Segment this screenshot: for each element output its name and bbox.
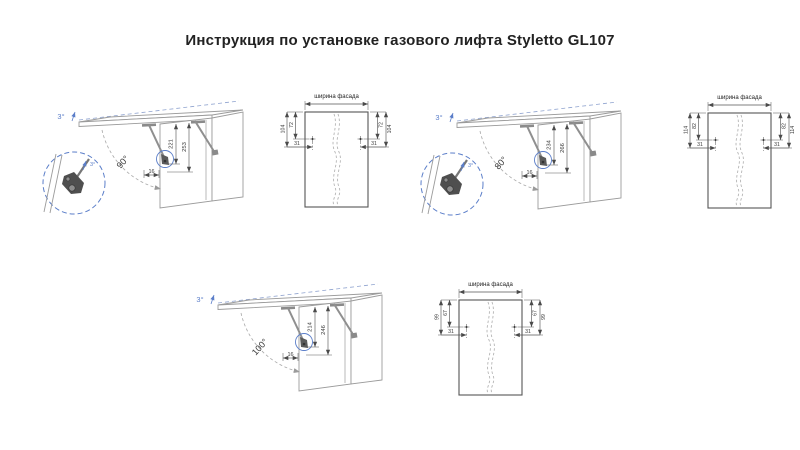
dimension-inner: 221 (169, 139, 175, 149)
bracket-detail-circle (43, 152, 105, 214)
dimension-outer: 253 (182, 142, 188, 152)
facade-dim-outer-left: 99 (435, 314, 441, 320)
facade-drawing-100: ширина фасада 99 67 99 67 31 31 (434, 276, 549, 411)
facade-dim-inner-right: 67 (533, 310, 539, 316)
cabinet-diagram-100: 3° 100° 214 246 16 (167, 269, 407, 404)
facade-width-label: ширина фасада (717, 95, 762, 101)
facade-geometry (284, 101, 389, 207)
facade-dim-inner-left: 72 (289, 122, 295, 128)
facade-dim-inner-left: 67 (443, 310, 449, 316)
overtravel-angle-label: 3° (57, 112, 64, 121)
facade-dim-inner-right: 72 (379, 122, 385, 128)
facade-dim-side-right: 31 (371, 141, 377, 147)
opening-angle-label: 80° (492, 154, 509, 171)
facade-width-label: ширина фасада (314, 94, 359, 100)
facade-drawing-80: ширина фасада 114 82 114 82 31 31 (683, 89, 798, 224)
facade-geometry (687, 102, 792, 208)
facade-dim-inner-right: 82 (782, 123, 788, 129)
dimension-offset: 16 (148, 169, 154, 175)
detail-angle-label: 3° (90, 162, 95, 168)
cabinet-diagram-90: 3° 3° 90° 221 253 16 (28, 86, 268, 221)
dimension-offset: 16 (287, 352, 293, 358)
facade-dim-side-right: 31 (774, 142, 780, 148)
facade-dim-side-left: 31 (294, 141, 300, 147)
opening-angle-label: 90° (114, 153, 131, 170)
page-title: Инструкция по установке газового лифта S… (0, 32, 800, 49)
dimension-outer: 266 (560, 143, 566, 153)
detail-angle-label: 3° (468, 163, 473, 169)
facade-dim-outer-right: 114 (790, 126, 796, 134)
bracket-detail-circle (421, 153, 483, 215)
facade-dim-outer-right: 99 (541, 314, 547, 320)
facade-dim-side-right: 31 (525, 329, 531, 335)
facade-dim-side-left: 31 (697, 142, 703, 148)
dimension-inner: 234 (547, 139, 553, 149)
dimension-outer: 246 (321, 325, 327, 335)
dimension-inner: 214 (308, 321, 314, 331)
overtravel-angle-label: 3° (435, 113, 442, 122)
facade-geometry (438, 289, 543, 395)
facade-dim-side-left: 31 (448, 329, 454, 335)
facade-width-label: ширина фасада (468, 282, 513, 288)
facade-dim-inner-left: 82 (692, 123, 698, 129)
overtravel-angle-label: 3° (196, 295, 203, 304)
cabinet-geometry (211, 284, 382, 391)
facade-dim-outer-right: 104 (387, 125, 393, 134)
cabinet-diagram-80: 3° 3° 80° 234 266 16 (406, 87, 646, 222)
facade-drawing-90: ширина фасада 104 72 104 72 31 31 (280, 88, 395, 223)
dimension-offset: 16 (526, 170, 532, 176)
facade-dim-outer-left: 114 (684, 126, 690, 134)
facade-dim-outer-left: 104 (281, 125, 287, 134)
